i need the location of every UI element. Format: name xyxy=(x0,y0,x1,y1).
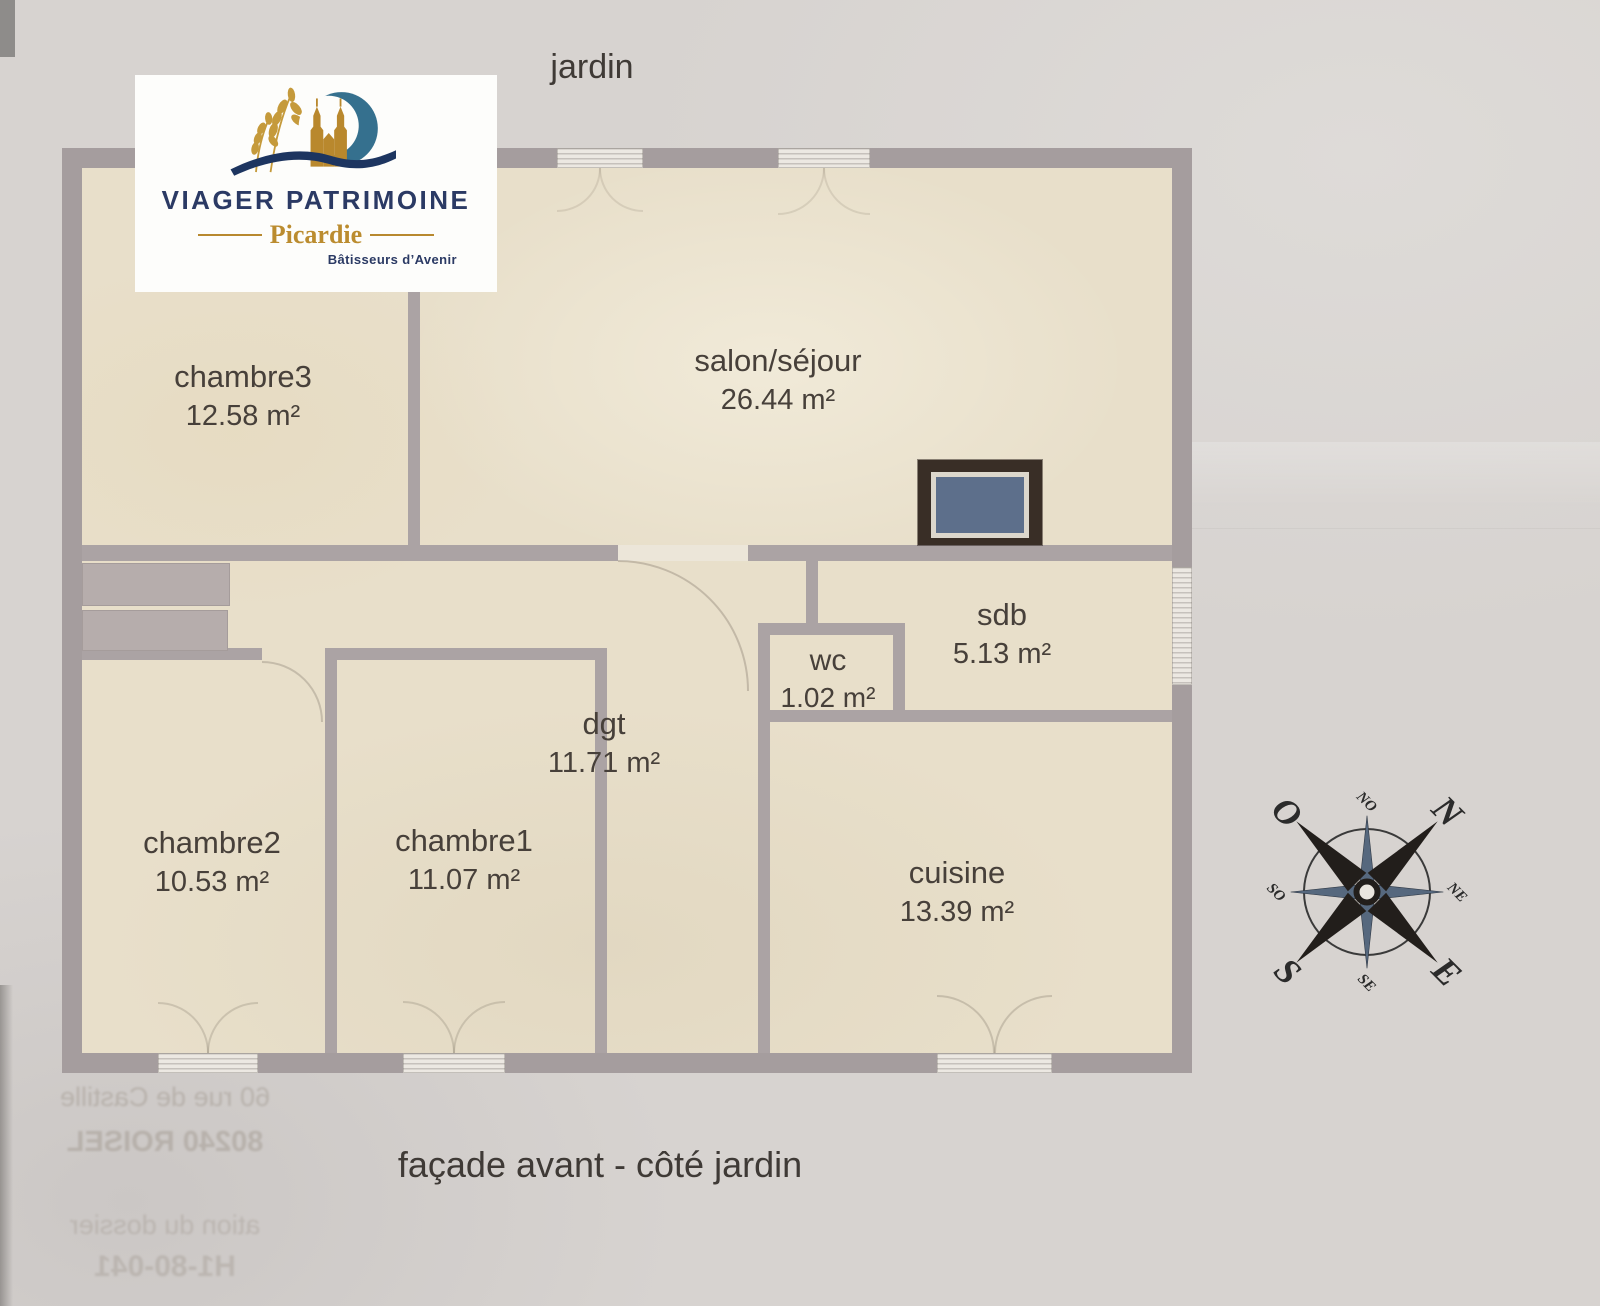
room-label-cuisine: cuisine 13.39 m² xyxy=(807,854,1107,930)
room-name: cuisine xyxy=(807,854,1107,892)
agency-region: Picardie xyxy=(270,220,362,250)
room-name: sdb xyxy=(902,596,1102,634)
room-name: dgt xyxy=(504,705,704,743)
room-area: 26.44 m² xyxy=(628,383,928,418)
compass-label-no: NO xyxy=(1352,788,1379,815)
agency-logo-card: VIAGER PATRIMOINE Picardie Bâtisseurs d’… xyxy=(135,75,497,292)
floorplan-page: jardin façade avant - côté jardin chambr… xyxy=(0,0,1600,1306)
room-area: 12.58 m² xyxy=(93,399,393,434)
compass-label-se: SE xyxy=(1354,971,1378,995)
compass-rose: N E S O NO NE SE SO xyxy=(1237,762,1497,1022)
room-area: 13.39 m² xyxy=(807,895,1107,930)
room-label-salon: salon/séjour 26.44 m² xyxy=(628,342,928,418)
room-label-sdb: sdb 5.13 m² xyxy=(902,596,1102,672)
divider-rule xyxy=(198,234,262,237)
room-label-wc: wc 1.02 m² xyxy=(758,643,898,715)
agency-tagline: Bâtisseurs d’Avenir xyxy=(328,252,457,267)
front-facade-label: façade avant - côté jardin xyxy=(350,1144,850,1186)
agency-name: VIAGER PATRIMOINE xyxy=(162,185,471,216)
compass-label-so: SO xyxy=(1263,880,1288,905)
room-area: 11.71 m² xyxy=(504,746,704,781)
room-name: chambre3 xyxy=(93,358,393,396)
room-label-dgt: dgt 11.71 m² xyxy=(504,705,704,781)
room-area: 5.13 m² xyxy=(902,637,1102,672)
room-name: wc xyxy=(758,643,898,680)
garden-side-label: jardin xyxy=(492,48,692,87)
room-name: chambre1 xyxy=(314,822,614,860)
bleed-line: ation du dossier xyxy=(0,1210,330,1241)
room-name: salon/séjour xyxy=(628,342,928,380)
agency-logo-graphic xyxy=(211,83,421,183)
room-label-chambre1: chambre1 11.07 m² xyxy=(314,822,614,898)
room-label-chambre3: chambre3 12.58 m² xyxy=(93,358,393,434)
bleed-line: 60 rue de Castille xyxy=(0,1082,330,1113)
room-area: 1.02 m² xyxy=(758,681,898,715)
divider-rule xyxy=(370,234,434,237)
room-area: 11.07 m² xyxy=(314,863,614,898)
bleed-through-text: 60 rue de Castille 80240 ROISEL ation du… xyxy=(0,1082,330,1302)
logo-divider: Picardie xyxy=(198,220,434,250)
compass-label-ne: NE xyxy=(1443,879,1470,906)
bleed-line: H1-80-041 xyxy=(0,1250,330,1284)
bleed-line: 80240 ROISEL xyxy=(0,1126,330,1159)
